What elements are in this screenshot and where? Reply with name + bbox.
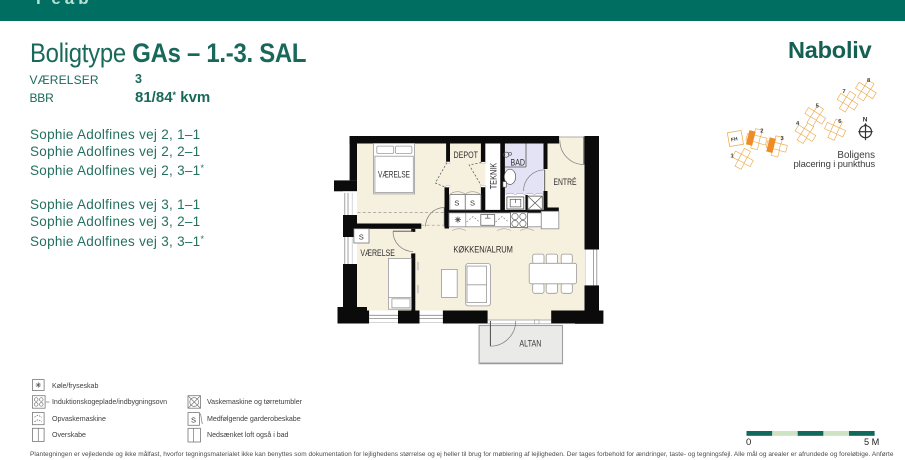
svg-text:S: S xyxy=(191,415,196,424)
svg-text:3: 3 xyxy=(781,136,785,142)
svg-text:7: 7 xyxy=(842,89,845,95)
svg-text:S: S xyxy=(359,232,364,241)
svg-text:KØKKEN/ALRUM: KØKKEN/ALRUM xyxy=(453,245,513,255)
svg-text:N: N xyxy=(863,117,868,124)
svg-text:DEPOT: DEPOT xyxy=(454,150,479,160)
svg-text:VÆRELSE: VÆRELSE xyxy=(378,170,410,180)
svg-text:ENTRÉ: ENTRÉ xyxy=(554,177,577,187)
svg-text:TEKNIK: TEKNIK xyxy=(489,163,499,190)
svg-text:VÆRELSE: VÆRELSE xyxy=(360,248,395,258)
svg-text:S: S xyxy=(470,198,475,207)
svg-text:S: S xyxy=(454,198,459,207)
svg-text:BAD: BAD xyxy=(511,157,526,167)
svg-text:2: 2 xyxy=(760,129,763,135)
svg-text:ALTAN: ALTAN xyxy=(519,339,541,349)
